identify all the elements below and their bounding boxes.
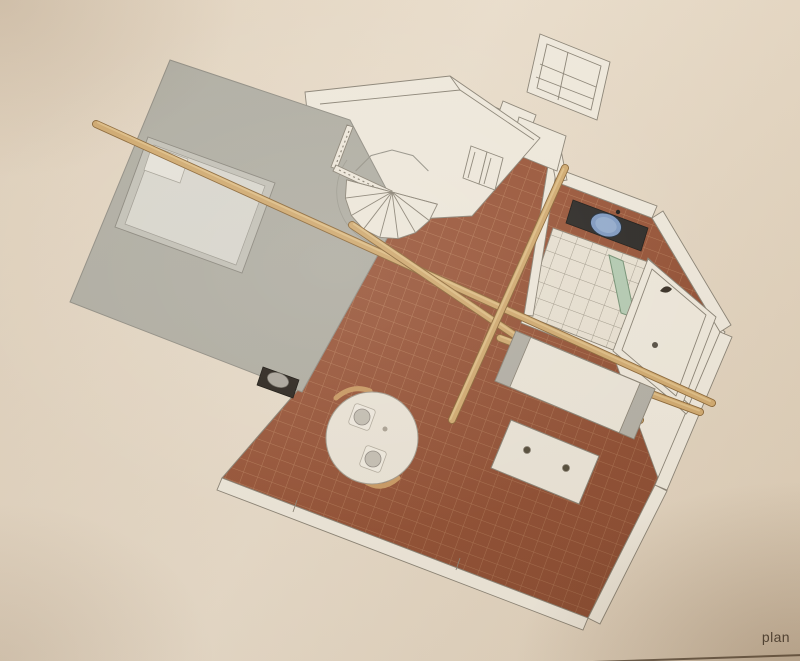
floor-plan-drawing: [0, 0, 800, 661]
faucet: [616, 210, 620, 214]
plan-caption: plan: [762, 629, 790, 645]
table-item: [383, 427, 388, 432]
shelving-unit: [527, 34, 610, 120]
bathtub-drain: [652, 342, 658, 348]
floor-plan-photo: plan: [0, 0, 800, 661]
